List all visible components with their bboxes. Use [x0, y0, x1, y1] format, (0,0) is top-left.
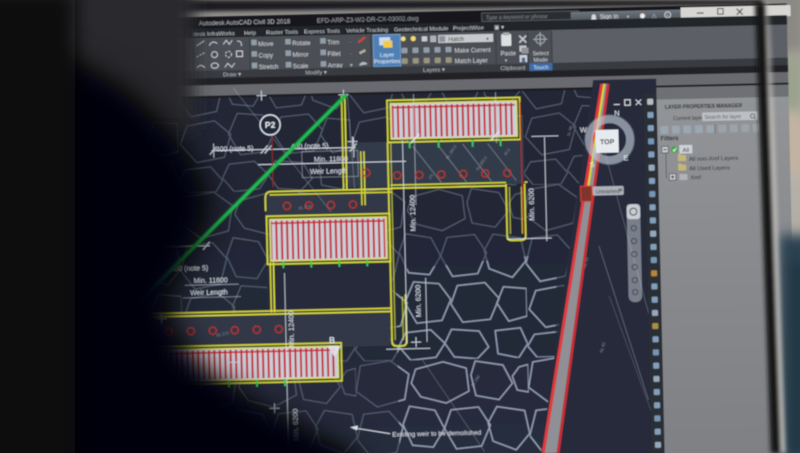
svg-text:Min. 12400: Min. 12400 [408, 195, 418, 232]
svg-text:Weir Length: Weir Length [310, 168, 348, 176]
svg-text:P2: P2 [265, 120, 276, 130]
svg-text:Rotate: Rotate [292, 40, 311, 47]
svg-text:All Used Layers: All Used Layers [689, 165, 730, 172]
svg-text:S: S [589, 160, 594, 169]
svg-text:Trim: Trim [327, 39, 339, 46]
svg-text:Min. 12400: Min. 12400 [286, 311, 296, 348]
svg-text:N: N [614, 108, 620, 117]
svg-text:Min. 11800: Min. 11800 [194, 277, 228, 285]
svg-text:Mode: Mode [533, 58, 548, 64]
svg-text:Fillet: Fillet [327, 51, 341, 58]
svg-text:Express Tools: Express Tools [304, 29, 340, 36]
svg-text:Paste: Paste [501, 51, 517, 57]
svg-text:desk InfraWorks: desk InfraWorks [193, 31, 235, 38]
svg-text:B: B [329, 336, 335, 345]
svg-text:Make Current: Make Current [454, 48, 491, 55]
svg-text:W: W [580, 125, 588, 134]
svg-text:Current layer:: Current layer: [673, 116, 705, 123]
svg-text:Geotechnical Module: Geotechnical Module [394, 26, 449, 33]
svg-text:Unnamed: Unnamed [596, 189, 620, 196]
svg-text:Weir Length: Weir Length [190, 289, 228, 297]
svg-text:Mirror: Mirror [292, 51, 308, 58]
svg-text:Match Layer: Match Layer [455, 58, 488, 65]
svg-text:·: · [349, 39, 351, 46]
svg-text:Hatch: Hatch [448, 37, 464, 43]
svg-text:400 (note 5): 400 (note 5) [216, 146, 254, 154]
svg-text:Help: Help [244, 31, 256, 37]
svg-text:Min. 6200: Min. 6200 [413, 285, 423, 318]
svg-text:Xref: Xref [690, 175, 701, 181]
svg-text:Draw ▾: Draw ▾ [223, 72, 241, 78]
svg-text:Clipboard: Clipboard [500, 65, 525, 72]
svg-text:▣ ▾: ▣ ▾ [494, 25, 504, 31]
svg-text:Min. 11800: Min. 11800 [314, 156, 348, 164]
svg-text:·: · [349, 51, 351, 58]
svg-text:Modify ▾: Modify ▾ [305, 70, 327, 76]
svg-text:Raster Tools: Raster Tools [266, 30, 298, 37]
svg-text:All non-Xref Layers: All non-Xref Layers [689, 156, 739, 163]
svg-text:All: All [683, 148, 690, 154]
svg-text:E: E [623, 153, 628, 162]
svg-text:Layers ▾: Layers ▾ [423, 67, 445, 73]
svg-text:Touch: Touch [533, 65, 549, 71]
svg-text:Move: Move [258, 41, 274, 48]
svg-text:Search for layer: Search for layer [705, 114, 742, 121]
svg-text:Filters: Filters [660, 136, 679, 142]
svg-text:Min. 6200: Min. 6200 [527, 188, 537, 221]
svg-text:Copy: Copy [258, 52, 274, 59]
svg-text:ProjectWise: ProjectWise [453, 25, 484, 32]
svg-text:Vehicle Tracking: Vehicle Tracking [346, 28, 388, 35]
svg-text:Layer: Layer [380, 53, 395, 59]
svg-text:TOP: TOP [600, 139, 615, 146]
svg-text:Properties: Properties [374, 59, 401, 66]
svg-text:Select: Select [532, 51, 549, 57]
